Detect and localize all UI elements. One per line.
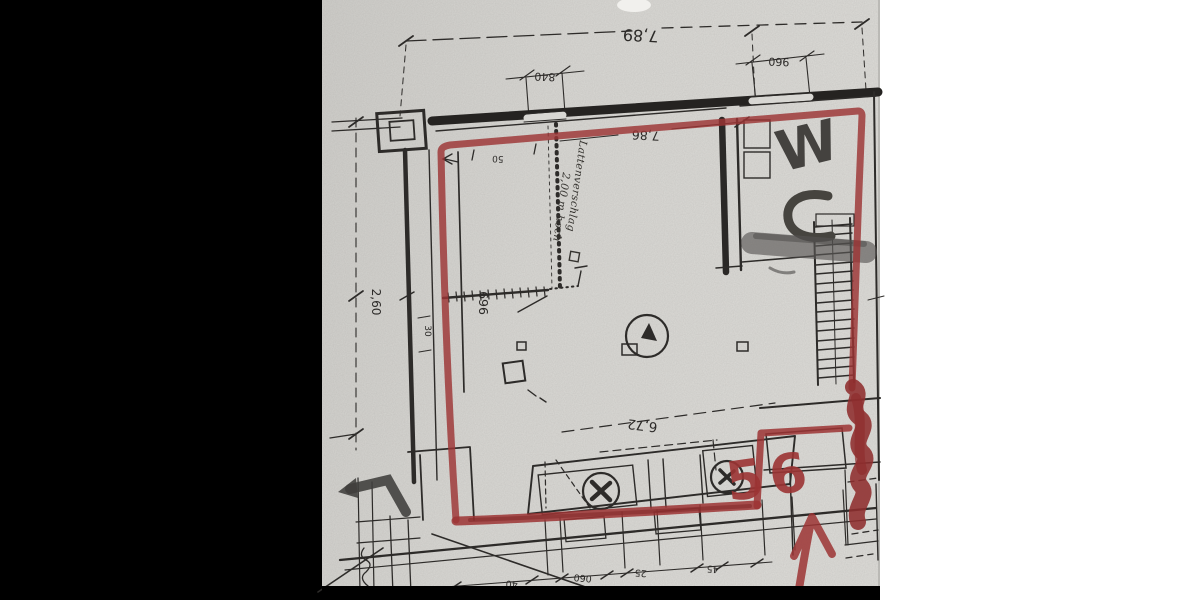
dim-overall-top: 7,89 (622, 25, 659, 46)
dim-partition-opening: 50 (492, 153, 504, 164)
dim-left-lower: 2,60 (369, 289, 383, 316)
dim-opening-b: 960 (768, 55, 789, 69)
dim-bottom-c: 25 (634, 566, 647, 578)
dim-bottom-d: 45 (706, 562, 719, 574)
bottom-black-bar (322, 586, 880, 600)
left-black-bar (0, 0, 322, 600)
red-number: 56 (722, 439, 817, 514)
right-white-field (880, 0, 1200, 600)
floor-plan-photo: 7,89 840 960 7,86 6,72 2,60 696 30 50 40… (0, 0, 1200, 600)
dim-opening-a: 840 (534, 70, 555, 84)
dim-left-upper: 696 (476, 291, 491, 315)
red-scribble-fill (856, 398, 862, 470)
screenshot-canvas: 7,89 840 960 7,86 6,72 2,60 696 30 50 40… (0, 0, 1200, 600)
dim-bottom-b: 060 (573, 571, 592, 584)
dim-partition-depth: 30 (422, 325, 432, 337)
